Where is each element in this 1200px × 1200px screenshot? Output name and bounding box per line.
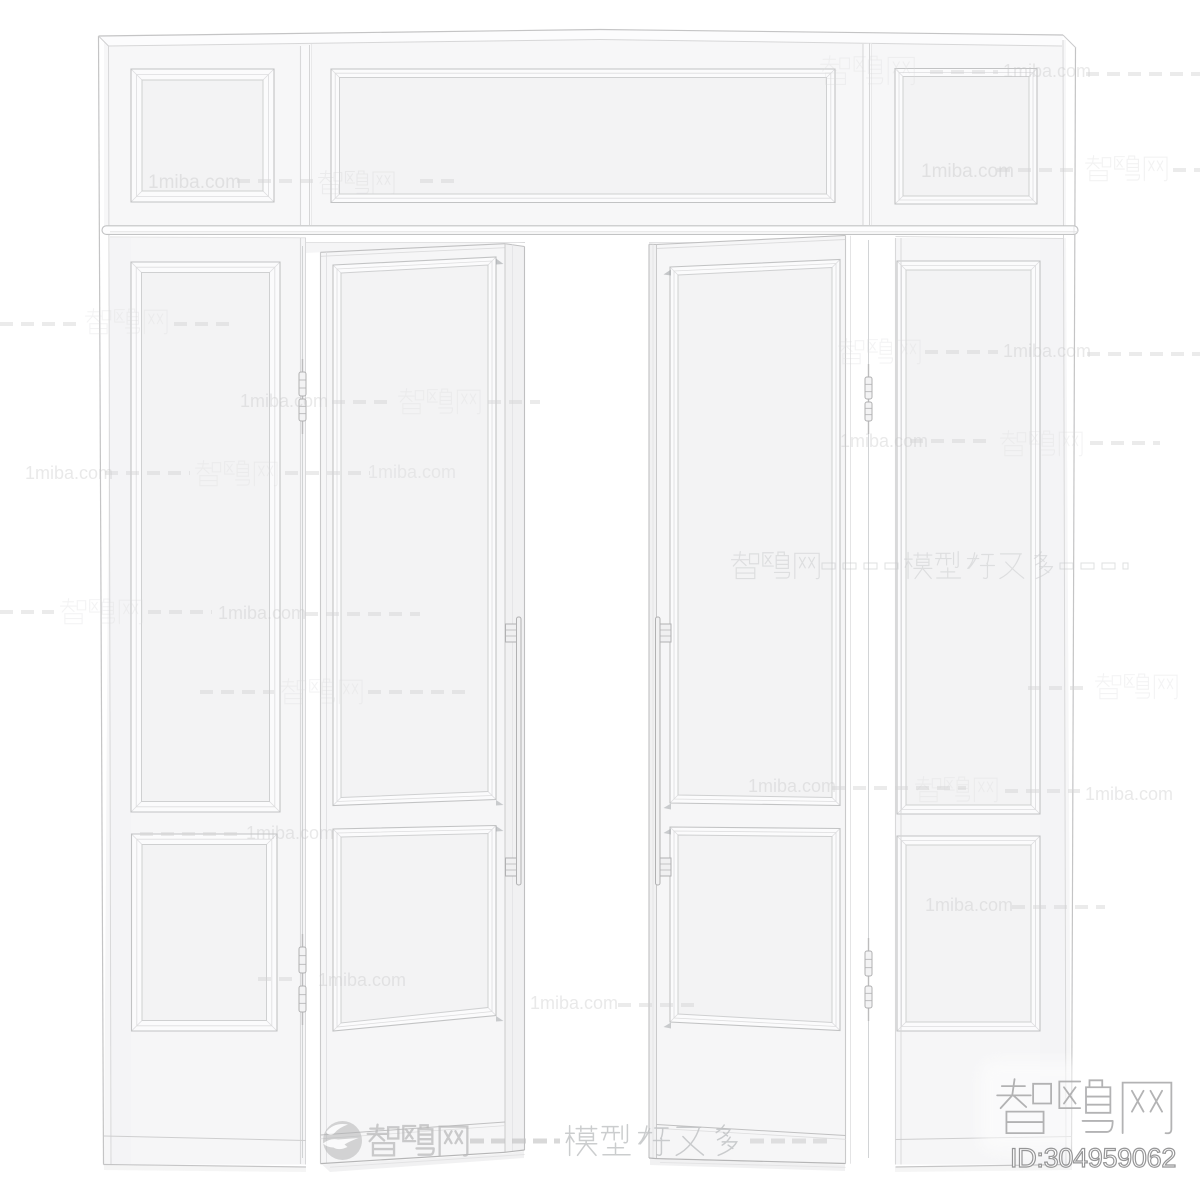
- svg-text:1miba.com: 1miba.com: [318, 970, 406, 990]
- svg-text:1miba.com: 1miba.com: [530, 993, 618, 1013]
- svg-text:1miba.com: 1miba.com: [1003, 61, 1091, 81]
- svg-text:ID:304959062: ID:304959062: [1010, 1143, 1176, 1173]
- svg-text:1miba.com: 1miba.com: [1085, 784, 1173, 804]
- svg-text:1miba.com: 1miba.com: [748, 776, 836, 796]
- svg-text:1miba.com: 1miba.com: [925, 895, 1013, 915]
- svg-text:1miba.com: 1miba.com: [368, 462, 456, 482]
- svg-text:1miba.com: 1miba.com: [1003, 341, 1091, 361]
- svg-text:1miba.com: 1miba.com: [240, 391, 328, 411]
- svg-text:1miba.com: 1miba.com: [148, 172, 241, 193]
- svg-text:1miba.com: 1miba.com: [25, 463, 113, 483]
- svg-text:1miba.com: 1miba.com: [246, 823, 334, 843]
- svg-text:1miba.com: 1miba.com: [218, 603, 306, 623]
